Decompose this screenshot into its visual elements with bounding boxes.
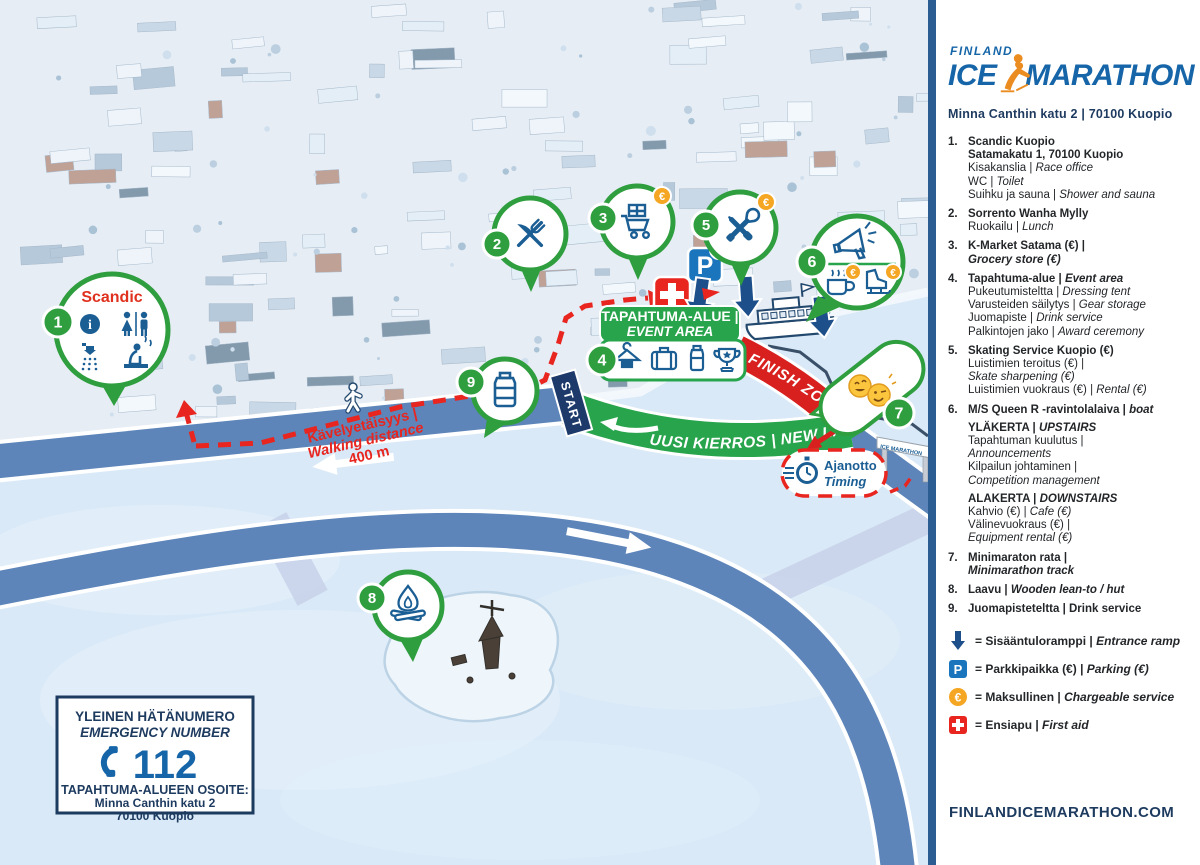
text-segment: Tapahtuman kuulutus | — [968, 435, 1084, 447]
first-aid-icon — [948, 715, 968, 735]
sidebar: FINLAND ICE MARATHON Minna Canthin katu … — [936, 0, 1200, 865]
legend-item-number: 4. — [948, 273, 968, 339]
legend-line: Sorrento Wanha Mylly — [968, 208, 1088, 221]
svg-text:TAPAHTUMA-ALUEEN OSOITE:: TAPAHTUMA-ALUEEN OSOITE: — [61, 783, 249, 797]
symbol-legend-text: = Ensiapu | First aid — [975, 718, 1089, 732]
logo-marathon-text: MARATHON — [1025, 61, 1194, 91]
text-segment: Equipment rental (€) — [968, 532, 1072, 544]
legend-line: Luistimien vuokraus (€) | Rental (€) — [968, 384, 1147, 397]
legend-line: Välinevuokraus (€) | — [968, 519, 1153, 532]
text-segment: WC | — [968, 176, 997, 188]
text-segment: M/S Queen R -ravintolalaiva | — [968, 404, 1129, 416]
legend-line: Skate sharpening (€) — [968, 371, 1147, 384]
legend-line: Laavu | Wooden lean-to / hut — [968, 584, 1124, 597]
text-segment: = Sisääntuloramppi | — [975, 634, 1096, 648]
event-area-banner: TAPAHTUMA-ALUE | EVENT AREA — [600, 306, 740, 342]
svg-text:EVENT AREA: EVENT AREA — [627, 324, 714, 339]
legend-line: Skating Service Kuopio (€) — [968, 345, 1147, 358]
legend-line: Satamakatu 1, 70100 Kuopio — [968, 149, 1155, 162]
legend-line: Tapahtuma-alue | Event area — [968, 273, 1146, 286]
legend-item: 3.K-Market Satama (€) |Grocery store (€) — [948, 240, 1196, 266]
text-segment: DOWNSTAIRS — [1040, 493, 1118, 505]
text-segment: Wooden lean-to / hut — [1011, 584, 1125, 596]
website-url: FINLANDICEMARATHON.COM — [949, 804, 1174, 821]
text-segment: Lunch — [1022, 221, 1053, 233]
text-segment: Skating Service Kuopio (€) — [968, 345, 1114, 357]
legend-line: WC | Toilet — [968, 176, 1155, 189]
info-icon: i — [80, 314, 100, 334]
text-segment: Kahvio (€) | — [968, 506, 1030, 518]
legend-line: Kahvio (€) | Cafe (€) — [968, 506, 1153, 519]
text-segment: Race office — [1036, 162, 1094, 174]
legend-line: Grocery store (€) — [968, 254, 1085, 267]
symbol-legend-text: = Maksullinen | Chargeable service — [975, 690, 1174, 704]
text-segment: Luistimien vuokraus (€) | — [968, 384, 1096, 396]
text-segment: Shower and sauna — [1059, 189, 1155, 201]
chargeable-euro-icon: € — [949, 688, 967, 706]
text-segment: = Maksullinen | — [975, 690, 1064, 704]
legend-line: Announcements — [968, 448, 1153, 461]
entrance-ramp-icon — [948, 631, 968, 651]
legend-item-number: 6. — [948, 404, 968, 546]
svg-text:3: 3 — [599, 210, 607, 227]
logo-ice-text: ICE — [948, 61, 997, 91]
text-segment: Kisakanslia | — [968, 162, 1036, 174]
symbol-legend-text: = Sisääntuloramppi | Entrance ramp — [975, 634, 1180, 648]
text-segment: Juomapiste | — [968, 312, 1036, 324]
legend-line: Pukeutumisteltta | Dressing tent — [968, 286, 1146, 299]
legend-line: Luistimien teroitus (€) | — [968, 358, 1147, 371]
legend-item: 8.Laavu | Wooden lean-to / hut — [948, 584, 1196, 597]
emergency-number: 112 — [133, 743, 198, 787]
text-segment: Pukeutumisteltta | — [968, 286, 1062, 298]
text-segment: Sorrento Wanha Mylly — [968, 208, 1088, 220]
svg-text:2: 2 — [493, 236, 501, 253]
text-segment: Grocery store (€) — [968, 254, 1061, 266]
svg-text:€: € — [890, 268, 896, 279]
text-segment: K-Market Satama (€) | — [968, 240, 1085, 252]
symbol-legend-row: P= Parkkipaikka (€) | Parking (€) — [948, 659, 1200, 679]
symbol-legend-text: = Parkkipaikka (€) | Parking (€) — [975, 662, 1149, 676]
svg-text:9: 9 — [467, 374, 475, 391]
symbol-legend-row: = Sisääntuloramppi | Entrance ramp — [948, 631, 1200, 651]
text-segment: Minimaraton rata | — [968, 552, 1067, 564]
svg-text:€: € — [955, 690, 962, 704]
symbol-legend-row: €= Maksullinen | Chargeable service — [948, 687, 1200, 707]
symbol-legend-row: = Ensiapu | First aid — [948, 715, 1200, 735]
legend-line: Suihku ja sauna | Shower and sauna — [968, 189, 1155, 202]
text-segment: Skate sharpening (€) — [968, 371, 1075, 383]
svg-text:P: P — [954, 662, 963, 677]
text-segment: Juomapisteteltta | Drink service — [968, 603, 1141, 615]
text-segment: First aid — [1042, 718, 1089, 732]
map-sidebar-divider — [928, 0, 936, 865]
text-segment: boat — [1129, 404, 1153, 416]
text-segment: Varusteiden säilytys | — [968, 299, 1079, 311]
venue-address: Minna Canthin katu 2 | 70100 Kuopio — [948, 107, 1200, 121]
text-segment: Award ceremony — [1058, 326, 1144, 338]
text-segment: Chargeable service — [1064, 690, 1174, 704]
legend-line: M/S Queen R -ravintolalaiva | boat — [968, 404, 1153, 417]
entrance-ramp-icon — [950, 631, 966, 651]
legend-line: Kilpailun johtaminen | — [968, 461, 1153, 474]
legend-list: 1.Scandic KuopioSatamakatu 1, 70100 Kuop… — [948, 136, 1196, 617]
text-segment: Tapahtuma-alue | — [968, 273, 1065, 285]
marker-4-event-area-badge: 4 — [587, 340, 745, 380]
text-segment: Rental (€) — [1096, 384, 1147, 396]
text-segment: Entrance ramp — [1096, 634, 1180, 648]
legend-line: Juomapisteteltta | Drink service — [968, 603, 1141, 616]
legend-item: 1.Scandic KuopioSatamakatu 1, 70100 Kuop… — [948, 136, 1196, 202]
text-segment: Dressing tent — [1062, 286, 1130, 298]
svg-text:5: 5 — [702, 217, 710, 234]
svg-text:Minna Canthin katu 2: Minna Canthin katu 2 — [95, 796, 216, 810]
text-segment: UPSTAIRS — [1039, 422, 1096, 434]
svg-text:P: P — [697, 252, 714, 280]
skater-icon — [995, 51, 1032, 93]
svg-text:70100 Kuopio: 70100 Kuopio — [116, 809, 194, 823]
event-map: FINISH ZONE UUSI KIERROS | NEW LAP — [0, 0, 928, 865]
legend-line: Varusteiden säilytys | Gear storage — [968, 299, 1146, 312]
legend-line: K-Market Satama (€) | — [968, 240, 1085, 253]
text-segment: Luistimien teroitus (€) | — [968, 358, 1084, 370]
text-segment: Competition management — [968, 475, 1100, 487]
legend-item: 7.Minimaraton rata |Minimarathon track — [948, 552, 1196, 578]
text-segment: = Parkkipaikka (€) | — [975, 662, 1087, 676]
text-segment: Gear storage — [1079, 299, 1146, 311]
parking-icon: P — [948, 659, 968, 679]
text-segment: Toilet — [997, 176, 1024, 188]
text-segment: Cafe (€) — [1030, 506, 1072, 518]
legend-line: Scandic Kuopio — [968, 136, 1155, 149]
ice-marathon-map-page: FINISH ZONE UUSI KIERROS | NEW LAP — [0, 0, 1200, 865]
emergency-info-box: YLEINEN HÄTÄNUMERO EMERGENCY NUMBER 112 … — [57, 697, 253, 823]
text-segment: YLÄKERTA | — [968, 422, 1039, 434]
text-segment: ALAKERTA | — [968, 493, 1040, 505]
legend-line: Ruokailu | Lunch — [968, 221, 1088, 234]
legend-item-number: 1. — [948, 136, 968, 202]
legend-item: 4.Tapahtuma-alue | Event areaPukeutumist… — [948, 273, 1196, 339]
legend-line: ALAKERTA | DOWNSTAIRS — [968, 493, 1153, 506]
svg-text:YLEINEN HÄTÄNUMERO: YLEINEN HÄTÄNUMERO — [75, 709, 235, 724]
text-segment: Välinevuokraus (€) | — [968, 519, 1070, 531]
legend-item-number: 9. — [948, 603, 968, 616]
legend-item: 9.Juomapisteteltta | Drink service — [948, 603, 1196, 616]
svg-text:TAPAHTUMA-ALUE |: TAPAHTUMA-ALUE | — [601, 308, 738, 324]
svg-text:€: € — [763, 197, 769, 209]
legend-line: Kisakanslia | Race office — [968, 162, 1155, 175]
legend-line: Tapahtuman kuulutus | — [968, 435, 1153, 448]
text-segment: Palkintojen jako | — [968, 326, 1058, 338]
svg-text:1: 1 — [54, 315, 63, 332]
svg-text:4: 4 — [598, 353, 607, 370]
svg-text:EMERGENCY NUMBER: EMERGENCY NUMBER — [80, 725, 230, 740]
chargeable-icon: € — [948, 687, 968, 707]
text-segment: Announcements — [968, 448, 1051, 460]
symbol-legend: = Sisääntuloramppi | Entrance rampP= Par… — [948, 631, 1200, 735]
legend-item-number: 3. — [948, 240, 968, 266]
legend-line: Minimarathon track — [968, 565, 1074, 578]
legend-item: 5.Skating Service Kuopio (€)Luistimien t… — [948, 345, 1196, 398]
legend-item: 2.Sorrento Wanha MyllyRuokailu | Lunch — [948, 208, 1196, 234]
legend-item-number: 8. — [948, 584, 968, 597]
legend-item-number: 2. — [948, 208, 968, 234]
legend-line: Competition management — [968, 475, 1153, 488]
svg-text:8: 8 — [368, 590, 376, 607]
legend-item: 6.M/S Queen R -ravintolalaiva | boatYLÄK… — [948, 404, 1196, 546]
svg-text:6: 6 — [808, 254, 817, 271]
text-segment: = Ensiapu | — [975, 718, 1042, 732]
svg-text:Timing: Timing — [824, 474, 866, 489]
legend-line: YLÄKERTA | UPSTAIRS — [968, 422, 1153, 435]
svg-text:€: € — [850, 268, 856, 279]
text-segment: Scandic Kuopio — [968, 136, 1055, 148]
finland-ice-marathon-logo: FINLAND ICE MARATHON — [948, 44, 1194, 97]
svg-text:€: € — [659, 191, 665, 203]
first-aid-icon — [949, 716, 967, 734]
text-segment: Satamakatu 1, 70100 Kuopio — [968, 149, 1123, 161]
text-segment: Drink service — [1036, 312, 1102, 324]
legend-item-number: 7. — [948, 552, 968, 578]
scandic-label: Scandic — [81, 289, 142, 306]
text-segment: Parking (€) — [1087, 662, 1149, 676]
text-segment: Ruokailu | — [968, 221, 1022, 233]
svg-text:i: i — [88, 318, 92, 333]
parking-icon: P — [949, 660, 967, 678]
legend-line: Equipment rental (€) — [968, 532, 1153, 545]
text-segment: Laavu | — [968, 584, 1011, 596]
text-segment: Event area — [1065, 273, 1123, 285]
legend-item-number: 5. — [948, 345, 968, 398]
text-segment: Minimarathon track — [968, 565, 1074, 577]
svg-text:Ajanotto: Ajanotto — [824, 458, 877, 473]
svg-text:7: 7 — [895, 406, 904, 423]
text-segment: Suihku ja sauna | — [968, 189, 1059, 201]
legend-line: Palkintojen jako | Award ceremony — [968, 326, 1146, 339]
text-segment: Kilpailun johtaminen | — [968, 461, 1077, 473]
legend-line: Juomapiste | Drink service — [968, 312, 1146, 325]
legend-line: Minimaraton rata | — [968, 552, 1074, 565]
